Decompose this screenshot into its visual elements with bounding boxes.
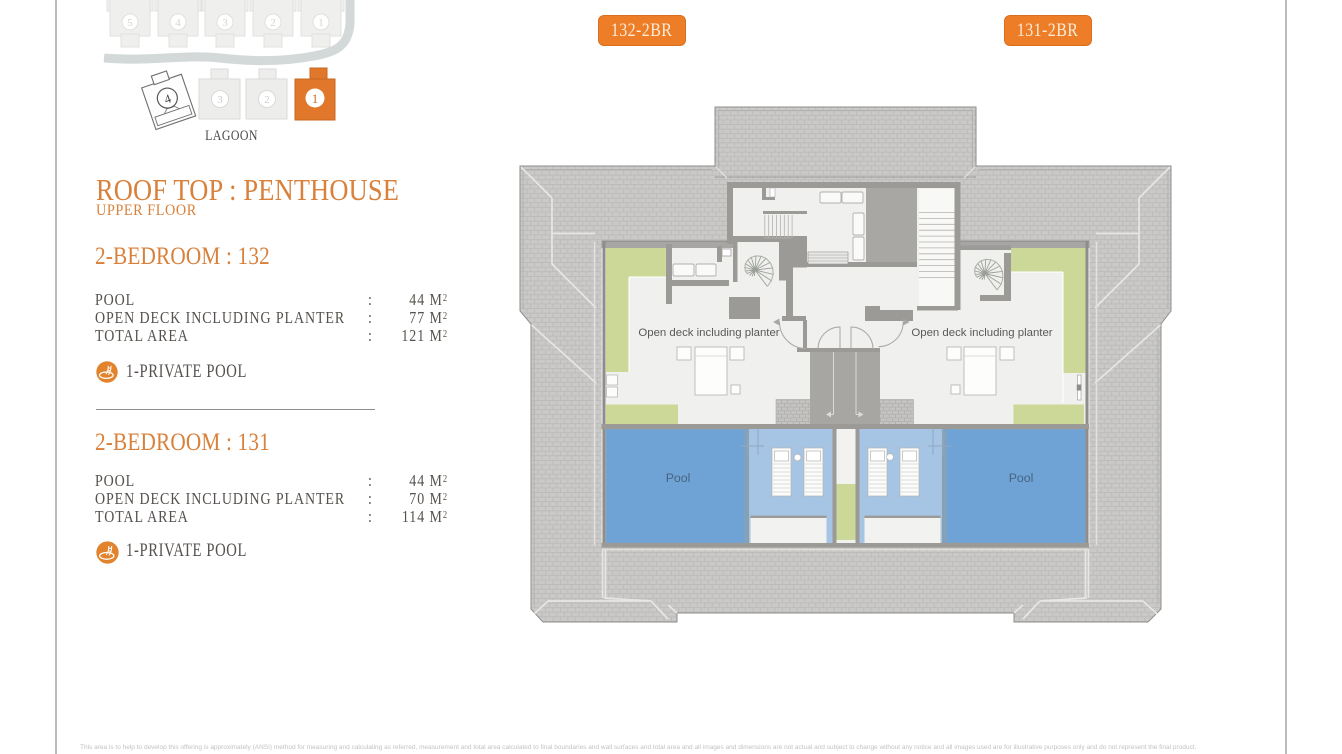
svg-text:Open deck including planter: Open deck including planter <box>911 327 1052 339</box>
svg-text:2: 2 <box>264 94 270 106</box>
svg-text:2: 2 <box>270 17 276 29</box>
svg-text:5: 5 <box>127 17 133 29</box>
svg-text:Pool: Pool <box>666 471 691 485</box>
svg-text:Pool: Pool <box>1009 471 1034 485</box>
svg-text:4: 4 <box>175 17 181 29</box>
svg-text:1: 1 <box>318 17 324 29</box>
svg-text:1: 1 <box>312 91 319 106</box>
svg-text:3: 3 <box>222 17 228 29</box>
svg-text:LAGOON: LAGOON <box>205 127 258 143</box>
svg-text:Open deck including planter: Open deck including planter <box>638 327 779 339</box>
svg-text:3: 3 <box>217 94 223 106</box>
